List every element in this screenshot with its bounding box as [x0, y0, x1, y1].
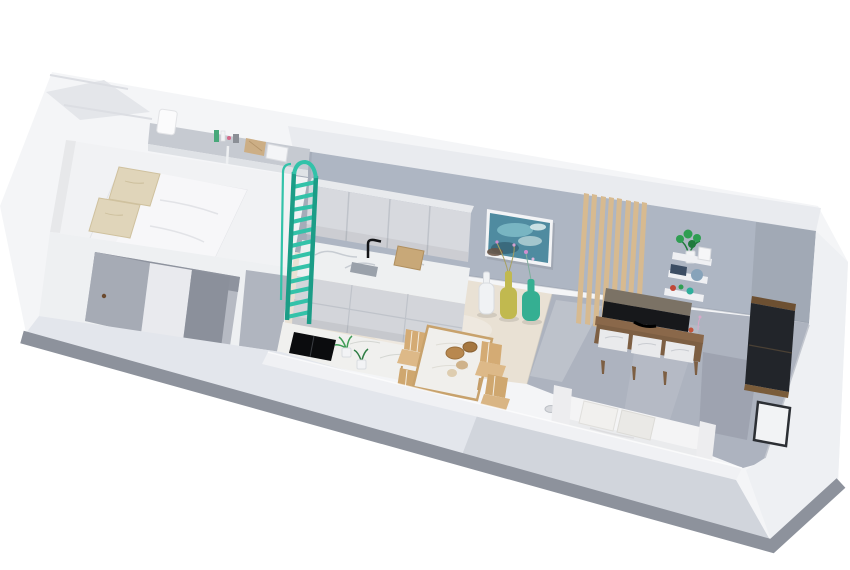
- sprig-flower: [495, 240, 498, 243]
- pillow: [109, 167, 160, 206]
- green-decor: [679, 285, 684, 290]
- green-bottle: [214, 130, 219, 142]
- plant-leaf: [688, 240, 696, 248]
- console-red-decor: [689, 328, 694, 333]
- decor-bowl: [446, 347, 464, 359]
- decor-bowl: [463, 342, 477, 352]
- chair-back: [485, 374, 508, 398]
- plant-leaf: [684, 230, 693, 239]
- art-texture: [518, 236, 542, 246]
- niche-divider: [227, 146, 228, 164]
- apartment-render-stage: [0, 0, 850, 570]
- wardrobe-front: [745, 303, 795, 392]
- apartment-render: [0, 0, 850, 570]
- sprig-flower: [524, 250, 528, 254]
- decor-bowl: [456, 361, 468, 370]
- yellow-vase: [500, 287, 517, 319]
- teal-vase-neck: [528, 279, 535, 293]
- rolled-towels: [156, 109, 177, 135]
- white-vase: [479, 283, 494, 314]
- pink-decor: [227, 136, 231, 140]
- herb-pot: [357, 360, 366, 369]
- herb-pot: [342, 348, 351, 357]
- door-handle: [102, 294, 106, 298]
- shelf-books: [698, 247, 711, 261]
- chair-back: [480, 341, 502, 365]
- blue-plate: [691, 269, 703, 281]
- sprig-flower: [532, 258, 535, 261]
- decor-bowl: [447, 369, 457, 377]
- right-wall-framed-panel: [754, 402, 790, 446]
- art-texture: [530, 224, 546, 231]
- art-texture: [487, 248, 503, 256]
- kitchen: [292, 178, 474, 352]
- pink-flower: [699, 316, 702, 319]
- white-bottle: [221, 131, 225, 141]
- teal-vase: [522, 291, 540, 321]
- alcove-far-wall: [85, 252, 150, 334]
- alcove-partition: [141, 263, 192, 341]
- teal-cup: [687, 288, 694, 295]
- sprig-flower: [512, 243, 515, 246]
- plant-leaf: [676, 235, 684, 243]
- yellow-vase-neck: [505, 271, 512, 289]
- art-texture: [497, 223, 533, 237]
- red-decor: [670, 285, 676, 291]
- dark-box: [233, 134, 239, 143]
